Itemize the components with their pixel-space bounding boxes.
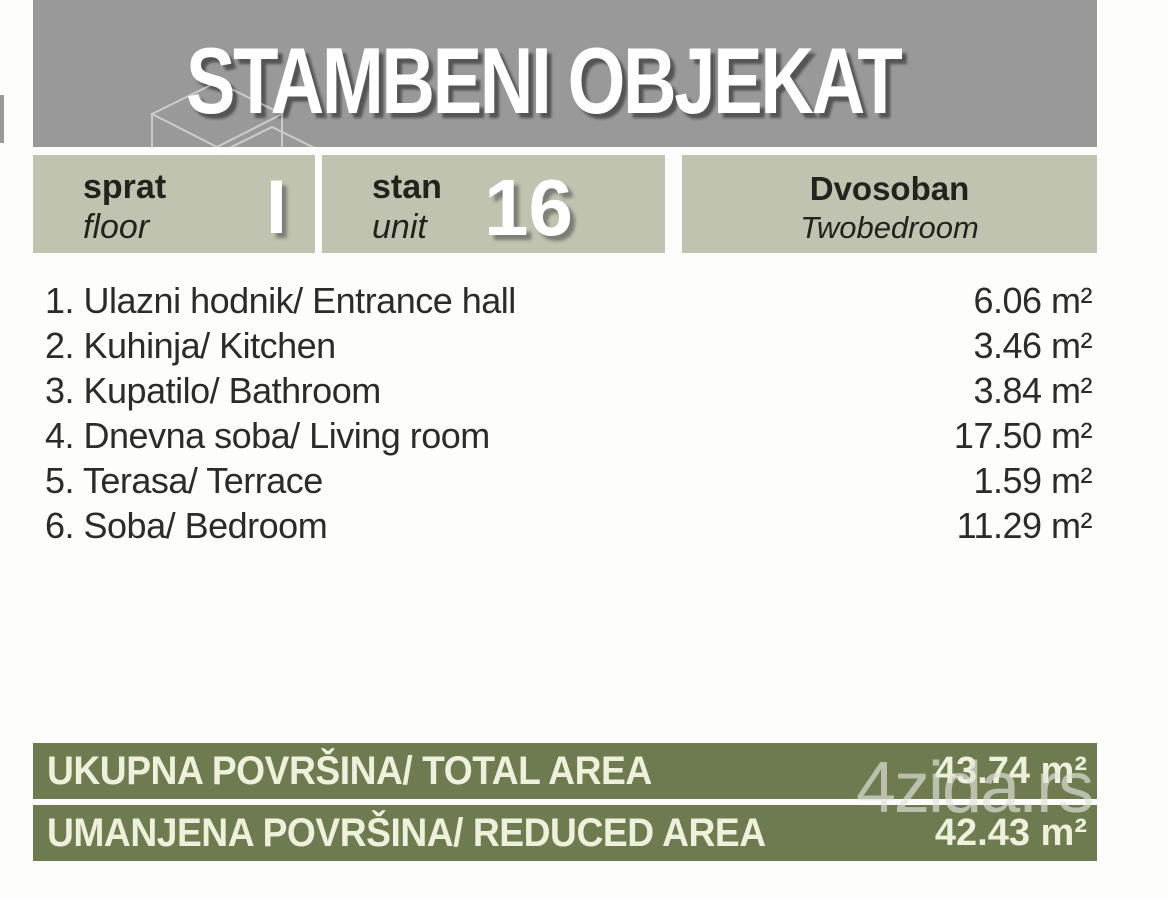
room-row: 6. Soba/ Bedroom 11.29 m² [45,503,1092,548]
room-row: 3. Kupatilo/ Bathroom 3.84 m² [45,368,1092,413]
total-label: UKUPNA POVRŠINA/ TOTAL AREA [47,749,652,794]
room-area: 17.50 m² [954,415,1092,457]
room-area: 3.84 m² [973,370,1092,412]
room-label: 1. Ulazni hodnik/ Entrance hall [45,280,516,322]
room-row: 4. Dnevna soba/ Living room 17.50 m² [45,413,1092,458]
floor-value: I [266,159,287,257]
room-area: 6.06 m² [973,280,1092,322]
room-row: 5. Terasa/ Terrace 1.59 m² [45,458,1092,503]
room-row: 1. Ulazni hodnik/ Entrance hall 6.06 m² [45,278,1092,323]
unit-value: 16 [484,159,573,257]
room-area: 1.59 m² [973,460,1092,502]
room-label: 3. Kupatilo/ Bathroom [45,370,381,412]
floor-box: sprat floor I [33,155,315,253]
apartment-type-sr: Dvosoban [682,155,1097,209]
room-label: 4. Dnevna soba/ Living room [45,415,490,457]
room-area: 3.46 m² [973,325,1092,367]
apartment-spec-sheet: STAMBENI OBJEKAT sprat floor I stan unit… [0,0,1167,900]
room-area: 11.29 m² [957,505,1092,547]
apartment-type-box: Dvosoban Twobedroom [682,155,1097,253]
crop-artifact [0,95,4,143]
room-row: 2. Kuhinja/ Kitchen 3.46 m² [45,323,1092,368]
room-label: 2. Kuhinja/ Kitchen [45,325,336,367]
unit-box: stan unit 16 [322,155,665,253]
room-list: 1. Ulazni hodnik/ Entrance hall 6.06 m² … [45,278,1092,548]
room-label: 6. Soba/ Bedroom [45,505,327,547]
room-label: 5. Terasa/ Terrace [45,460,323,502]
apartment-type-en: Twobedroom [682,209,1097,247]
watermark-4zida: 4zida.rs [856,752,1092,824]
total-label: UMANJENA POVRŠINA/ REDUCED AREA [47,811,766,856]
